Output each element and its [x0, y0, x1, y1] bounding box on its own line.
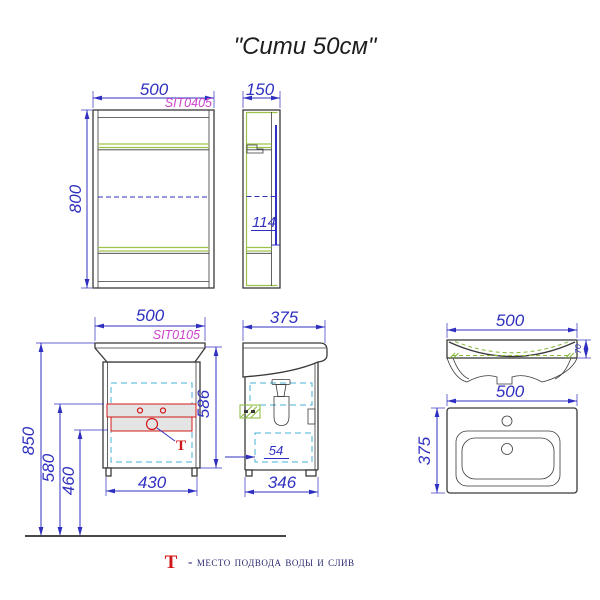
basin-underside: [447, 358, 577, 384]
drain-height-dim: 460: [59, 466, 78, 495]
wall-gap-dim: 54: [269, 443, 283, 458]
mount-height-dim: 850: [19, 426, 38, 455]
vanity-side-depth-dim: 375: [270, 308, 299, 327]
siphon-neck: [276, 385, 286, 397]
bottom-depth-dim: 346: [268, 473, 297, 492]
door-handle-detail: [308, 409, 315, 424]
leg: [106, 468, 111, 476]
legend-t-marker: Т: [165, 552, 178, 573]
mirror-front-height-dim: 800: [66, 184, 85, 213]
hidden-upper-outline: [250, 383, 312, 405]
hidden-lower-outline: [255, 433, 312, 462]
basin-front-view: 500 70: [447, 311, 591, 384]
leg: [306, 470, 316, 476]
basin-rim-height-dim: 70: [573, 344, 583, 354]
drawing-canvas: "Сити 50см" 500 SIT0405 800 150: [0, 0, 600, 600]
basin-top-width-dim: 500: [496, 382, 525, 401]
vanity-front-view: 500 SIT0105 Т 850 580 460 586 430: [19, 306, 222, 536]
basin-top-depth-dim: 375: [415, 436, 434, 465]
mirror-side-depth-dim: 150: [246, 80, 275, 99]
body-height-dim: 586: [194, 389, 213, 418]
leg: [246, 470, 252, 476]
mirror-front-code: SIT0405: [165, 96, 212, 110]
basin-top-view: 500 375: [415, 382, 577, 493]
technical-drawing-page: "Сити 50см" 500 SIT0405 800 150: [0, 0, 600, 600]
basin-front-width-dim: 500: [496, 311, 525, 330]
mirror-cabinet-front-view: 500 SIT0405 800: [66, 80, 214, 288]
supply-height-dim: 580: [39, 453, 58, 482]
vanity-side-view: 375 54 346: [225, 308, 327, 497]
legend: Т - место подвода воды и слив: [165, 552, 355, 573]
page-title: "Сити 50см": [234, 33, 378, 60]
t-marker: Т: [176, 438, 186, 454]
vanity-front-code: SIT0105: [153, 328, 200, 342]
bracket-mark: [244, 410, 248, 413]
siphon-bottle: [274, 397, 289, 426]
bottom-width-dim: 430: [138, 473, 167, 492]
basin-front-silhouette: [95, 343, 205, 362]
vanity-front-width-dim: 500: [136, 306, 165, 325]
mirror-side-inner-dim: 114: [252, 214, 276, 231]
mirror-cabinet-side-view: 150 114: [243, 80, 280, 288]
leg: [192, 468, 197, 476]
legend-text: - место подвода воды и слив: [188, 554, 355, 569]
service-zone-upper: [107, 404, 196, 417]
siphon-flange: [272, 380, 290, 385]
bracket-mark: [251, 410, 255, 413]
